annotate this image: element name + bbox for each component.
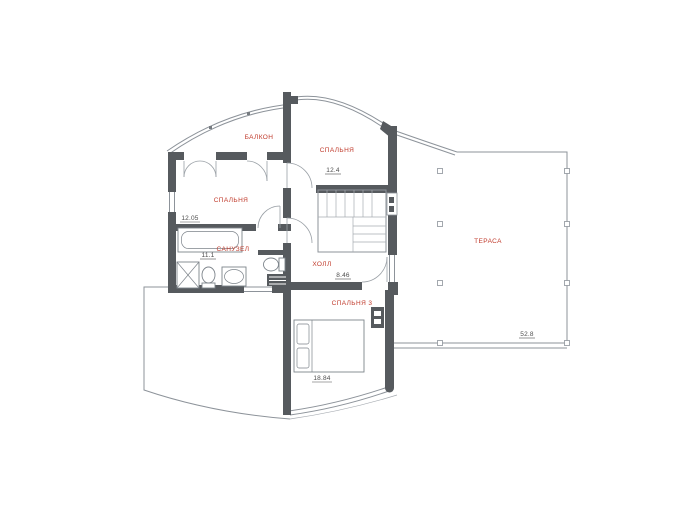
terrace-outline [393, 152, 567, 348]
room-area-hall: 8.46 [336, 272, 350, 279]
sink [222, 267, 246, 286]
curved-glazing-top [291, 96, 457, 155]
room-label-terrace: ТЕРАСА [474, 238, 502, 245]
room-area-terrace: 52.8 [520, 331, 534, 338]
floor-plan-canvas: БАЛКОН СПАЛЬНЯ 12.4 СПАЛЬНЯ 12.05 САНУЗЕ… [0, 0, 700, 525]
radiator-grille [371, 307, 384, 328]
staircase [318, 190, 386, 252]
terrace-post-icon [438, 222, 443, 227]
bedroom-bottom-furniture [294, 307, 384, 372]
bed [294, 320, 364, 372]
railing-tick-icon [209, 126, 212, 129]
terrace-post-icon [438, 341, 443, 346]
door-balcony-french [184, 161, 216, 177]
shower [177, 262, 199, 288]
terrace-post-icon [565, 341, 570, 346]
glass-door-terrace [390, 255, 395, 282]
room-label-bathroom: САНУЗЕЛ [217, 246, 250, 253]
window-left-wall [170, 192, 175, 212]
bathroom-fixtures [177, 228, 288, 288]
floor-plan-drawing: БАЛКОН СПАЛЬНЯ 12.4 СПАЛЬНЯ 12.05 САНУЗЕ… [0, 0, 700, 525]
door-balcony-single [247, 161, 267, 181]
balcony-railing [167, 104, 291, 154]
room-label-bedroom-left: СПАЛЬНЯ [214, 197, 249, 204]
room-area-bedroom-top: 12.4 [326, 167, 340, 174]
curved-glazing-bottom [289, 387, 397, 419]
room-label-hall: ХОЛЛ [312, 261, 331, 268]
door-bedroom-top [287, 163, 312, 188]
door-bathroom [258, 206, 280, 228]
terrace-posts [438, 169, 570, 346]
window-bathroom [244, 287, 272, 292]
terrace-post-icon [438, 169, 443, 174]
terrace-post-icon [565, 169, 570, 174]
terrace-post-icon [565, 281, 570, 286]
door-bedroom-bottom [362, 257, 387, 282]
window-niche-hall [387, 193, 397, 215]
terrace-post-icon [438, 281, 443, 286]
room-label-balcony: БАЛКОН [245, 134, 274, 141]
room-area-bathroom: 11.1 [202, 252, 215, 259]
toilet [202, 267, 215, 288]
wc-toilet [264, 258, 286, 271]
room-label-bedroom-bottom: СПАЛЬНЯ 3 [332, 300, 373, 307]
room-area-bedroom-bottom: 18.84 [313, 375, 330, 382]
room-area-bedroom-left: 12.05 [181, 215, 198, 222]
railing-tick-icon [247, 112, 250, 115]
wc-radiator-grille [267, 274, 288, 286]
room-label-bedroom-top: СПАЛЬНЯ [320, 147, 355, 154]
lower-terrace-outline [144, 287, 290, 419]
terrace-post-icon [565, 222, 570, 227]
